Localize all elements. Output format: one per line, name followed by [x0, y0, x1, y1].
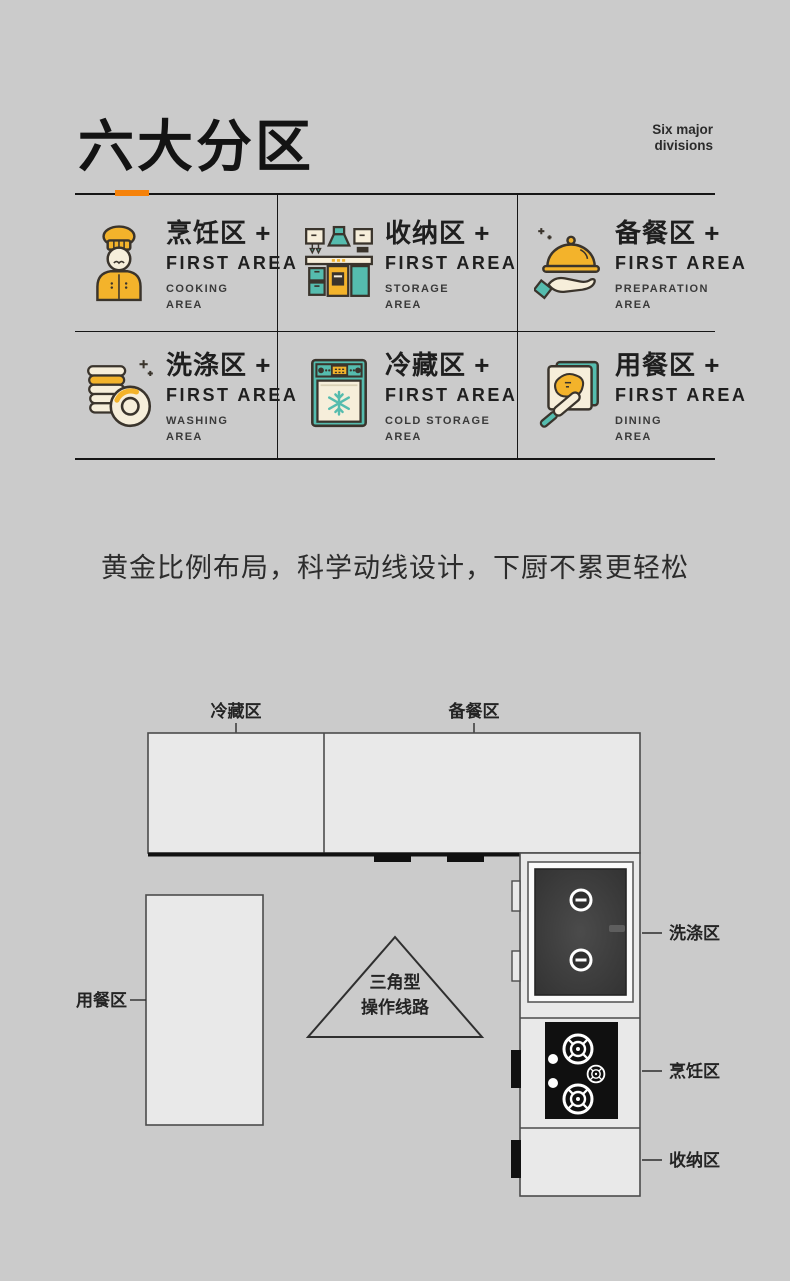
cooktop: [545, 1022, 618, 1119]
plan-label-preparation: 备餐区: [448, 701, 500, 721]
zone-subtitle: FIRST AREA: [385, 253, 517, 274]
zone-area-en: COLD STORAGE AREA: [385, 413, 517, 446]
zone-area-line2: AREA: [385, 299, 422, 311]
page-subtitle-en: Six major divisions: [652, 122, 713, 153]
cooktop-knob: [548, 1078, 558, 1088]
sink: [528, 862, 633, 1002]
cabinet-handle: [374, 853, 411, 862]
plan-label-dining: 用餐区: [76, 990, 127, 1010]
zone-area-line1: COOKING: [166, 283, 228, 295]
chef-icon: [85, 224, 155, 302]
zone-area-line2: AREA: [166, 431, 203, 443]
zone-area-line2: AREA: [615, 299, 652, 311]
page-subtitle-en-line1: Six major: [652, 122, 713, 138]
cabinet-handle: [447, 853, 484, 862]
dining-table: [146, 895, 263, 1125]
triangle-label-line2: 操作线路: [361, 997, 430, 1017]
floor-plan: 冷藏区 备餐区: [0, 685, 790, 1205]
zone-area-line1: STORAGE: [385, 283, 449, 295]
zone-card-preparation: 备餐区 + FIRST AREA PREPARATION AREA: [518, 195, 715, 332]
zone-title: 冷藏区 +: [385, 345, 517, 382]
zone-subtitle: FIRST AREA: [385, 385, 517, 406]
sink-drain: [571, 890, 591, 910]
zone-area-en: DINING AREA: [615, 413, 747, 446]
page-title: 六大分区: [78, 102, 314, 183]
accent-bar: [115, 190, 149, 196]
toast-icon: [534, 356, 604, 434]
zone-subtitle: FIRST AREA: [615, 385, 747, 406]
page-subtitle-en-line2: divisions: [652, 138, 713, 154]
zone-title: 用餐区 +: [615, 345, 747, 382]
plan-label-washing: 洗涤区: [669, 923, 720, 943]
door-handle: [511, 1140, 521, 1178]
zone-area-en: PREPARATION AREA: [615, 281, 747, 314]
freezer-icon: [304, 356, 374, 434]
zone-area-line2: AREA: [166, 299, 203, 311]
plan-label-cold-storage: 冷藏区: [211, 701, 262, 721]
zone-card-storage: 收纳区 + FIRST AREA STORAGE AREA: [278, 195, 518, 332]
zone-area-line1: DINING: [615, 415, 662, 427]
zone-area-line1: WASHING: [166, 415, 228, 427]
faucet: [609, 925, 625, 932]
serving-cloche-icon: [534, 224, 604, 302]
zone-area-line2: AREA: [615, 431, 652, 443]
plan-label-storage: 收纳区: [669, 1150, 720, 1170]
door-hinge: [512, 951, 520, 981]
zone-area-line1: PREPARATION: [615, 283, 709, 295]
zone-card-dining: 用餐区 + FIRST AREA DINING AREA: [518, 332, 715, 458]
triangle-label-line1: 三角型: [370, 972, 421, 992]
plan-label-cooking: 烹饪区: [669, 1061, 720, 1081]
sink-drain: [571, 950, 591, 970]
tagline: 黄金比例布局，科学动线设计，下厨不累更轻松: [0, 546, 790, 585]
cooktop-knob: [548, 1054, 558, 1064]
right-counter-column: [511, 853, 640, 1196]
kitchen-cabinet-icon: [304, 224, 374, 302]
door-handle: [511, 1050, 521, 1088]
upper-cabinets: [148, 733, 640, 862]
zone-area-en: STORAGE AREA: [385, 281, 517, 314]
zone-card-cold-storage: 冷藏区 + FIRST AREA COLD STORAGE AREA: [278, 332, 518, 458]
zone-title: 备餐区 +: [615, 213, 747, 250]
door-hinge: [512, 881, 520, 911]
zone-subtitle: FIRST AREA: [615, 253, 747, 274]
zone-area-line2: AREA: [385, 431, 422, 443]
dishes-icon: [85, 356, 155, 434]
zones-grid: 烹饪区 + FIRST AREA COOKING AREA: [75, 193, 715, 460]
work-triangle: 三角型 操作线路: [308, 937, 482, 1037]
zone-card-cooking: 烹饪区 + FIRST AREA COOKING AREA: [75, 195, 278, 332]
zone-title: 收纳区 +: [385, 213, 517, 250]
zone-area-line1: COLD STORAGE: [385, 415, 490, 427]
zone-card-washing: 洗涤区 + FIRST AREA WASHING AREA: [75, 332, 278, 458]
